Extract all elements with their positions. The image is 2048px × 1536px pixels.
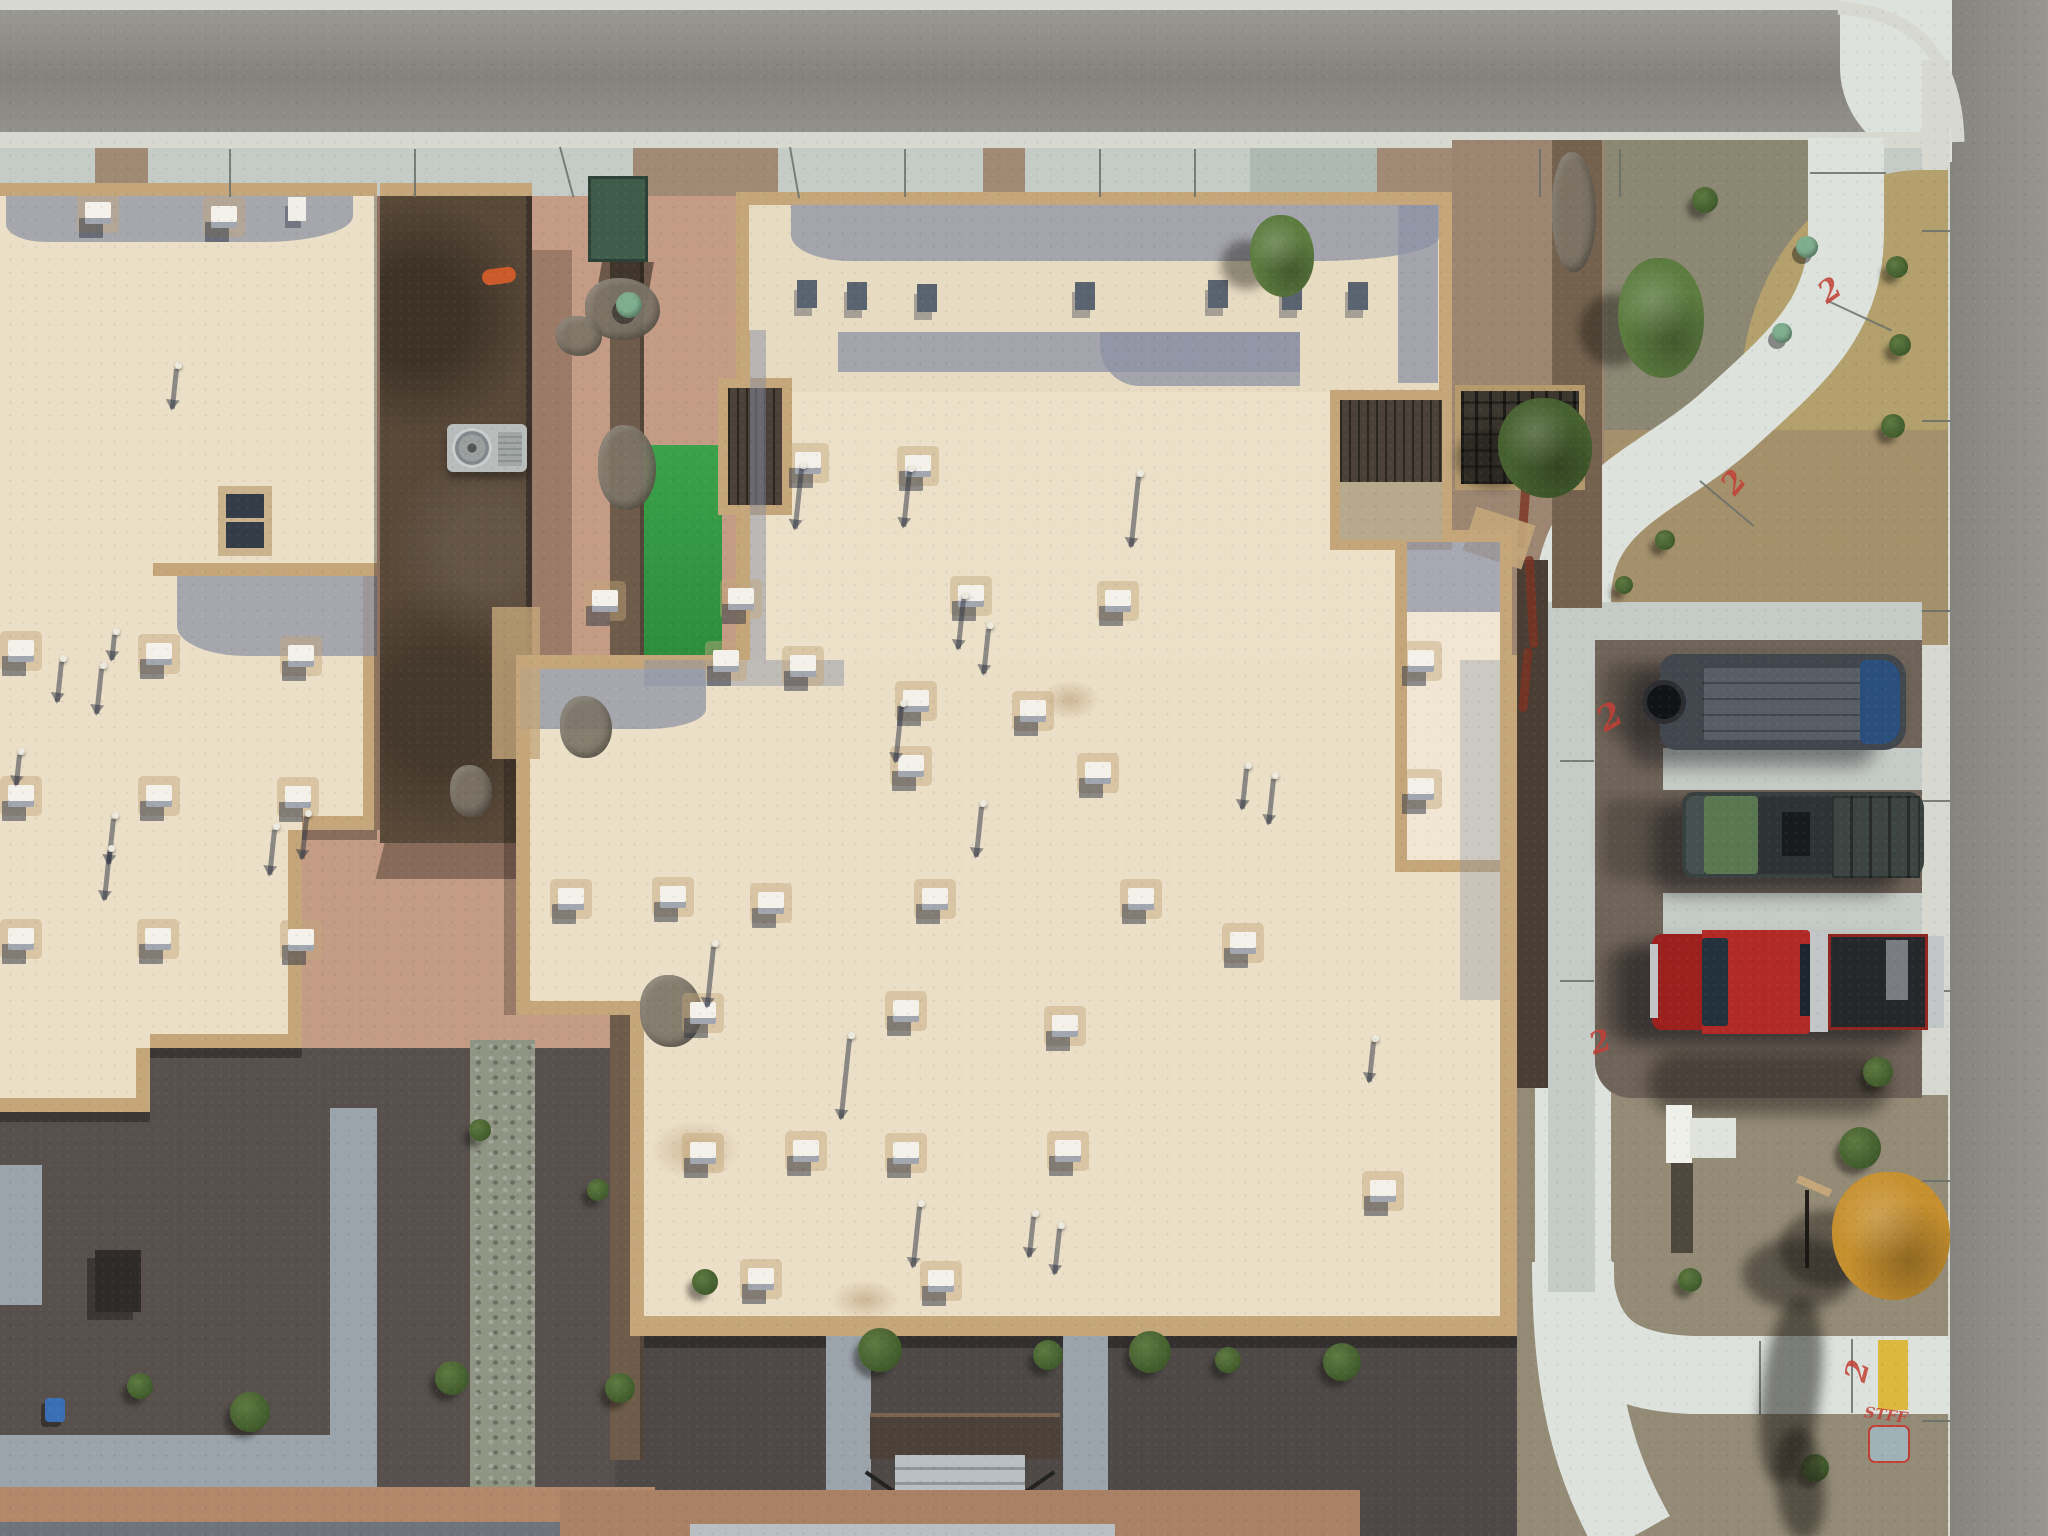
roof-vent-box bbox=[1230, 932, 1256, 954]
roof-shadow bbox=[177, 576, 377, 656]
tree-canopy bbox=[1250, 215, 1314, 297]
parapet bbox=[0, 1098, 150, 1112]
roof-vent-box bbox=[146, 785, 172, 807]
roof-vent-box bbox=[85, 202, 111, 224]
expansion-joint bbox=[1922, 1180, 1950, 1182]
roof-vent-pipe bbox=[980, 800, 987, 807]
shrub bbox=[1863, 1057, 1893, 1087]
yellow-curb-marking bbox=[1878, 1340, 1908, 1410]
roof-vent-pipe bbox=[1058, 1222, 1065, 1229]
edge-shadow bbox=[150, 1048, 302, 1058]
van-roof bbox=[1702, 666, 1864, 742]
roof-vent-box bbox=[1408, 650, 1434, 672]
expansion-joint bbox=[1922, 420, 1950, 422]
roof-vent-box bbox=[893, 1142, 919, 1164]
utility-dome bbox=[1772, 323, 1792, 343]
patio-floor bbox=[1340, 482, 1442, 540]
truck-bed bbox=[1828, 934, 1928, 1030]
expansion-joint bbox=[1922, 230, 1950, 232]
expansion-joint bbox=[229, 149, 231, 197]
roof-vent-dark bbox=[1348, 282, 1368, 310]
roof-vent-box bbox=[1128, 888, 1154, 910]
roof-vent-box bbox=[928, 1270, 954, 1292]
roof-vent-box bbox=[285, 786, 311, 808]
shrub bbox=[469, 1119, 491, 1141]
roof-vent-dark bbox=[1208, 280, 1228, 308]
shrub bbox=[1889, 334, 1911, 356]
roof-vent-box bbox=[790, 655, 816, 677]
truck-bed-cover bbox=[1832, 796, 1920, 878]
roof-vent-box bbox=[922, 888, 948, 910]
rock-cluster bbox=[560, 696, 612, 758]
roof-vent-box bbox=[288, 645, 314, 667]
roof-vent-box bbox=[1055, 1140, 1081, 1162]
blue-bucket bbox=[45, 1398, 65, 1422]
center-roof-main bbox=[630, 655, 1517, 1336]
window-glass bbox=[226, 494, 264, 548]
parapet bbox=[516, 1001, 644, 1015]
roof-vent-box bbox=[660, 886, 686, 908]
paver-path bbox=[0, 1435, 330, 1488]
van-gray bbox=[1660, 652, 1906, 754]
roof-shadow bbox=[1460, 660, 1500, 1000]
roof-vent-pipe bbox=[712, 940, 719, 947]
edge-shadow bbox=[302, 830, 377, 840]
expansion-joint bbox=[1922, 610, 1950, 612]
roof-vent-pipe bbox=[305, 810, 312, 817]
roof-vent-pipe bbox=[962, 592, 969, 599]
shrub bbox=[1886, 256, 1908, 278]
shrub bbox=[692, 1269, 718, 1295]
roof-vent-pipe bbox=[1372, 1035, 1379, 1042]
roof-vent-pipe bbox=[987, 622, 994, 629]
spare-tire bbox=[1642, 680, 1686, 724]
kiosk-shadow bbox=[1671, 1163, 1693, 1253]
roof-vent-pipe bbox=[918, 1200, 925, 1207]
roof-vent-dark bbox=[917, 284, 937, 312]
roof-vent-box bbox=[558, 888, 584, 910]
roof-vent-box bbox=[8, 928, 34, 950]
shrub bbox=[1678, 1268, 1702, 1292]
roof-vent-box bbox=[903, 690, 929, 712]
roof-vent-box bbox=[793, 1140, 819, 1162]
rock-cluster bbox=[598, 425, 656, 510]
roof-vent-box bbox=[1370, 1180, 1396, 1202]
parapet bbox=[644, 1316, 1517, 1336]
roof-vent-box bbox=[728, 588, 754, 610]
shrub bbox=[1839, 1127, 1881, 1169]
roof-vent-box bbox=[713, 650, 739, 672]
roof-stain bbox=[830, 1280, 900, 1320]
truck-grille bbox=[1650, 944, 1658, 1018]
truck-windshield bbox=[1702, 938, 1728, 1026]
utility-dome bbox=[616, 292, 642, 318]
truck-sunroof bbox=[1782, 812, 1810, 856]
roof-vent-box bbox=[1105, 590, 1131, 612]
truck-tailgate bbox=[1928, 936, 1944, 1028]
expansion-joint bbox=[1810, 172, 1886, 174]
shrub bbox=[1129, 1331, 1171, 1373]
roof-shadow bbox=[1398, 205, 1438, 383]
roof-vent-pipe bbox=[800, 462, 807, 469]
aerial-drone-photo: 22222STFF bbox=[0, 0, 2048, 1536]
roof-vent-box bbox=[1020, 700, 1046, 722]
roof-vent-box bbox=[748, 1268, 774, 1290]
roof-vent-pipe bbox=[1272, 772, 1279, 779]
roof-vent-pipe bbox=[1137, 470, 1144, 477]
shrub bbox=[605, 1373, 635, 1403]
truck-hood bbox=[1652, 934, 1702, 1030]
dirt-path-strip bbox=[492, 607, 540, 759]
ac-fan bbox=[452, 428, 492, 468]
shrub bbox=[1881, 414, 1905, 438]
roof-vent-pipe bbox=[1245, 762, 1252, 769]
van-windshield bbox=[1860, 660, 1900, 744]
parapet bbox=[380, 183, 532, 196]
parapet bbox=[630, 1015, 644, 1336]
rock-cluster bbox=[556, 316, 602, 356]
roof-vent-dark bbox=[797, 280, 817, 308]
pickup-dark bbox=[1682, 790, 1924, 880]
roof-vent-box bbox=[1085, 762, 1111, 784]
edge-shadow bbox=[0, 1112, 150, 1122]
truck-bed-rail bbox=[1810, 932, 1828, 1032]
truck-rear-window bbox=[1800, 944, 1810, 1016]
roof-vent-pipe bbox=[908, 465, 915, 472]
tree-canopy bbox=[1498, 398, 1592, 498]
roof-vent-box bbox=[288, 929, 314, 951]
roof-vent-box bbox=[1052, 1015, 1078, 1037]
roof-vent-pipe bbox=[18, 748, 25, 755]
truck-bed-cargo bbox=[1886, 940, 1908, 1000]
ramada-roof bbox=[870, 1413, 1060, 1459]
rock-cluster bbox=[450, 765, 492, 817]
roof-vent-pipe bbox=[848, 1032, 855, 1039]
expansion-joint bbox=[1619, 149, 1621, 197]
expansion-joint bbox=[904, 149, 906, 197]
roof-vent-box bbox=[145, 928, 171, 950]
roof-shadow bbox=[791, 205, 1439, 261]
shrub bbox=[1615, 576, 1633, 594]
expansion-joint bbox=[1099, 149, 1101, 197]
paver-band bbox=[690, 1524, 1115, 1536]
pickup-red bbox=[1650, 926, 1946, 1038]
roof-vent-pipe bbox=[108, 845, 115, 852]
paver-slab bbox=[0, 1165, 42, 1305]
patio-table bbox=[95, 1250, 141, 1312]
expansion-joint bbox=[1539, 149, 1541, 197]
expansion-joint bbox=[1922, 1420, 1950, 1422]
roof-shadow bbox=[1407, 542, 1500, 612]
tree-canopy bbox=[1618, 258, 1704, 378]
rock-cluster bbox=[1552, 152, 1596, 272]
roof-vent-box bbox=[758, 892, 784, 914]
roof-seam-shadow bbox=[374, 196, 380, 830]
roof-vent-box bbox=[211, 206, 237, 228]
utility-dome bbox=[1796, 236, 1818, 258]
roof-vent-box bbox=[8, 640, 34, 662]
expansion-joint bbox=[414, 149, 416, 197]
parapet bbox=[0, 183, 377, 196]
tree-canopy bbox=[1832, 1172, 1950, 1300]
roof-vent-box bbox=[893, 1000, 919, 1022]
shrub bbox=[1655, 530, 1675, 550]
roof-vent-box bbox=[592, 590, 618, 612]
paver-band bbox=[0, 1522, 655, 1536]
roof-vent-box bbox=[690, 1142, 716, 1164]
expansion-joint bbox=[1922, 800, 1950, 802]
expansion-joint bbox=[1560, 980, 1594, 982]
shrub bbox=[1215, 1347, 1241, 1373]
shrub bbox=[858, 1328, 902, 1372]
expansion-joint bbox=[1194, 149, 1196, 197]
ac-grill bbox=[498, 432, 522, 466]
roof-vent-dark bbox=[847, 282, 867, 310]
roof-vent-pipe bbox=[175, 362, 182, 369]
roof-vent-box bbox=[1408, 778, 1434, 800]
truck-windshield bbox=[1704, 796, 1758, 874]
roof-vent-pipe bbox=[273, 823, 280, 830]
expansion-joint bbox=[1560, 760, 1594, 762]
skylight bbox=[288, 197, 306, 221]
shrub bbox=[127, 1373, 153, 1399]
truck-hood bbox=[1686, 796, 1704, 874]
paver-path bbox=[330, 1108, 377, 1490]
mail-kiosk bbox=[1666, 1105, 1692, 1163]
roof-vent-pipe bbox=[900, 700, 907, 707]
roof-vent-pipe bbox=[1032, 1210, 1039, 1217]
parking-walkway bbox=[1548, 630, 1595, 1292]
roof-vent-pipe bbox=[113, 628, 120, 635]
roof-vent-dark bbox=[1075, 282, 1095, 310]
shrub bbox=[1033, 1340, 1063, 1370]
parapet bbox=[150, 1034, 302, 1048]
shrub bbox=[1692, 187, 1718, 213]
roof-vent-pipe bbox=[112, 812, 119, 819]
roof-shadow bbox=[1100, 332, 1300, 386]
parapet bbox=[153, 563, 377, 576]
utility-pad bbox=[1868, 1425, 1910, 1463]
roof-vent-pipe bbox=[60, 655, 67, 662]
mail-kiosk bbox=[1690, 1118, 1736, 1158]
shrub bbox=[230, 1392, 270, 1432]
utility-transformer-box bbox=[588, 176, 648, 262]
parapet bbox=[302, 816, 377, 830]
shrub bbox=[1323, 1343, 1361, 1381]
shrub bbox=[587, 1179, 609, 1201]
roof-vent-box bbox=[146, 643, 172, 665]
shrub bbox=[435, 1361, 469, 1395]
